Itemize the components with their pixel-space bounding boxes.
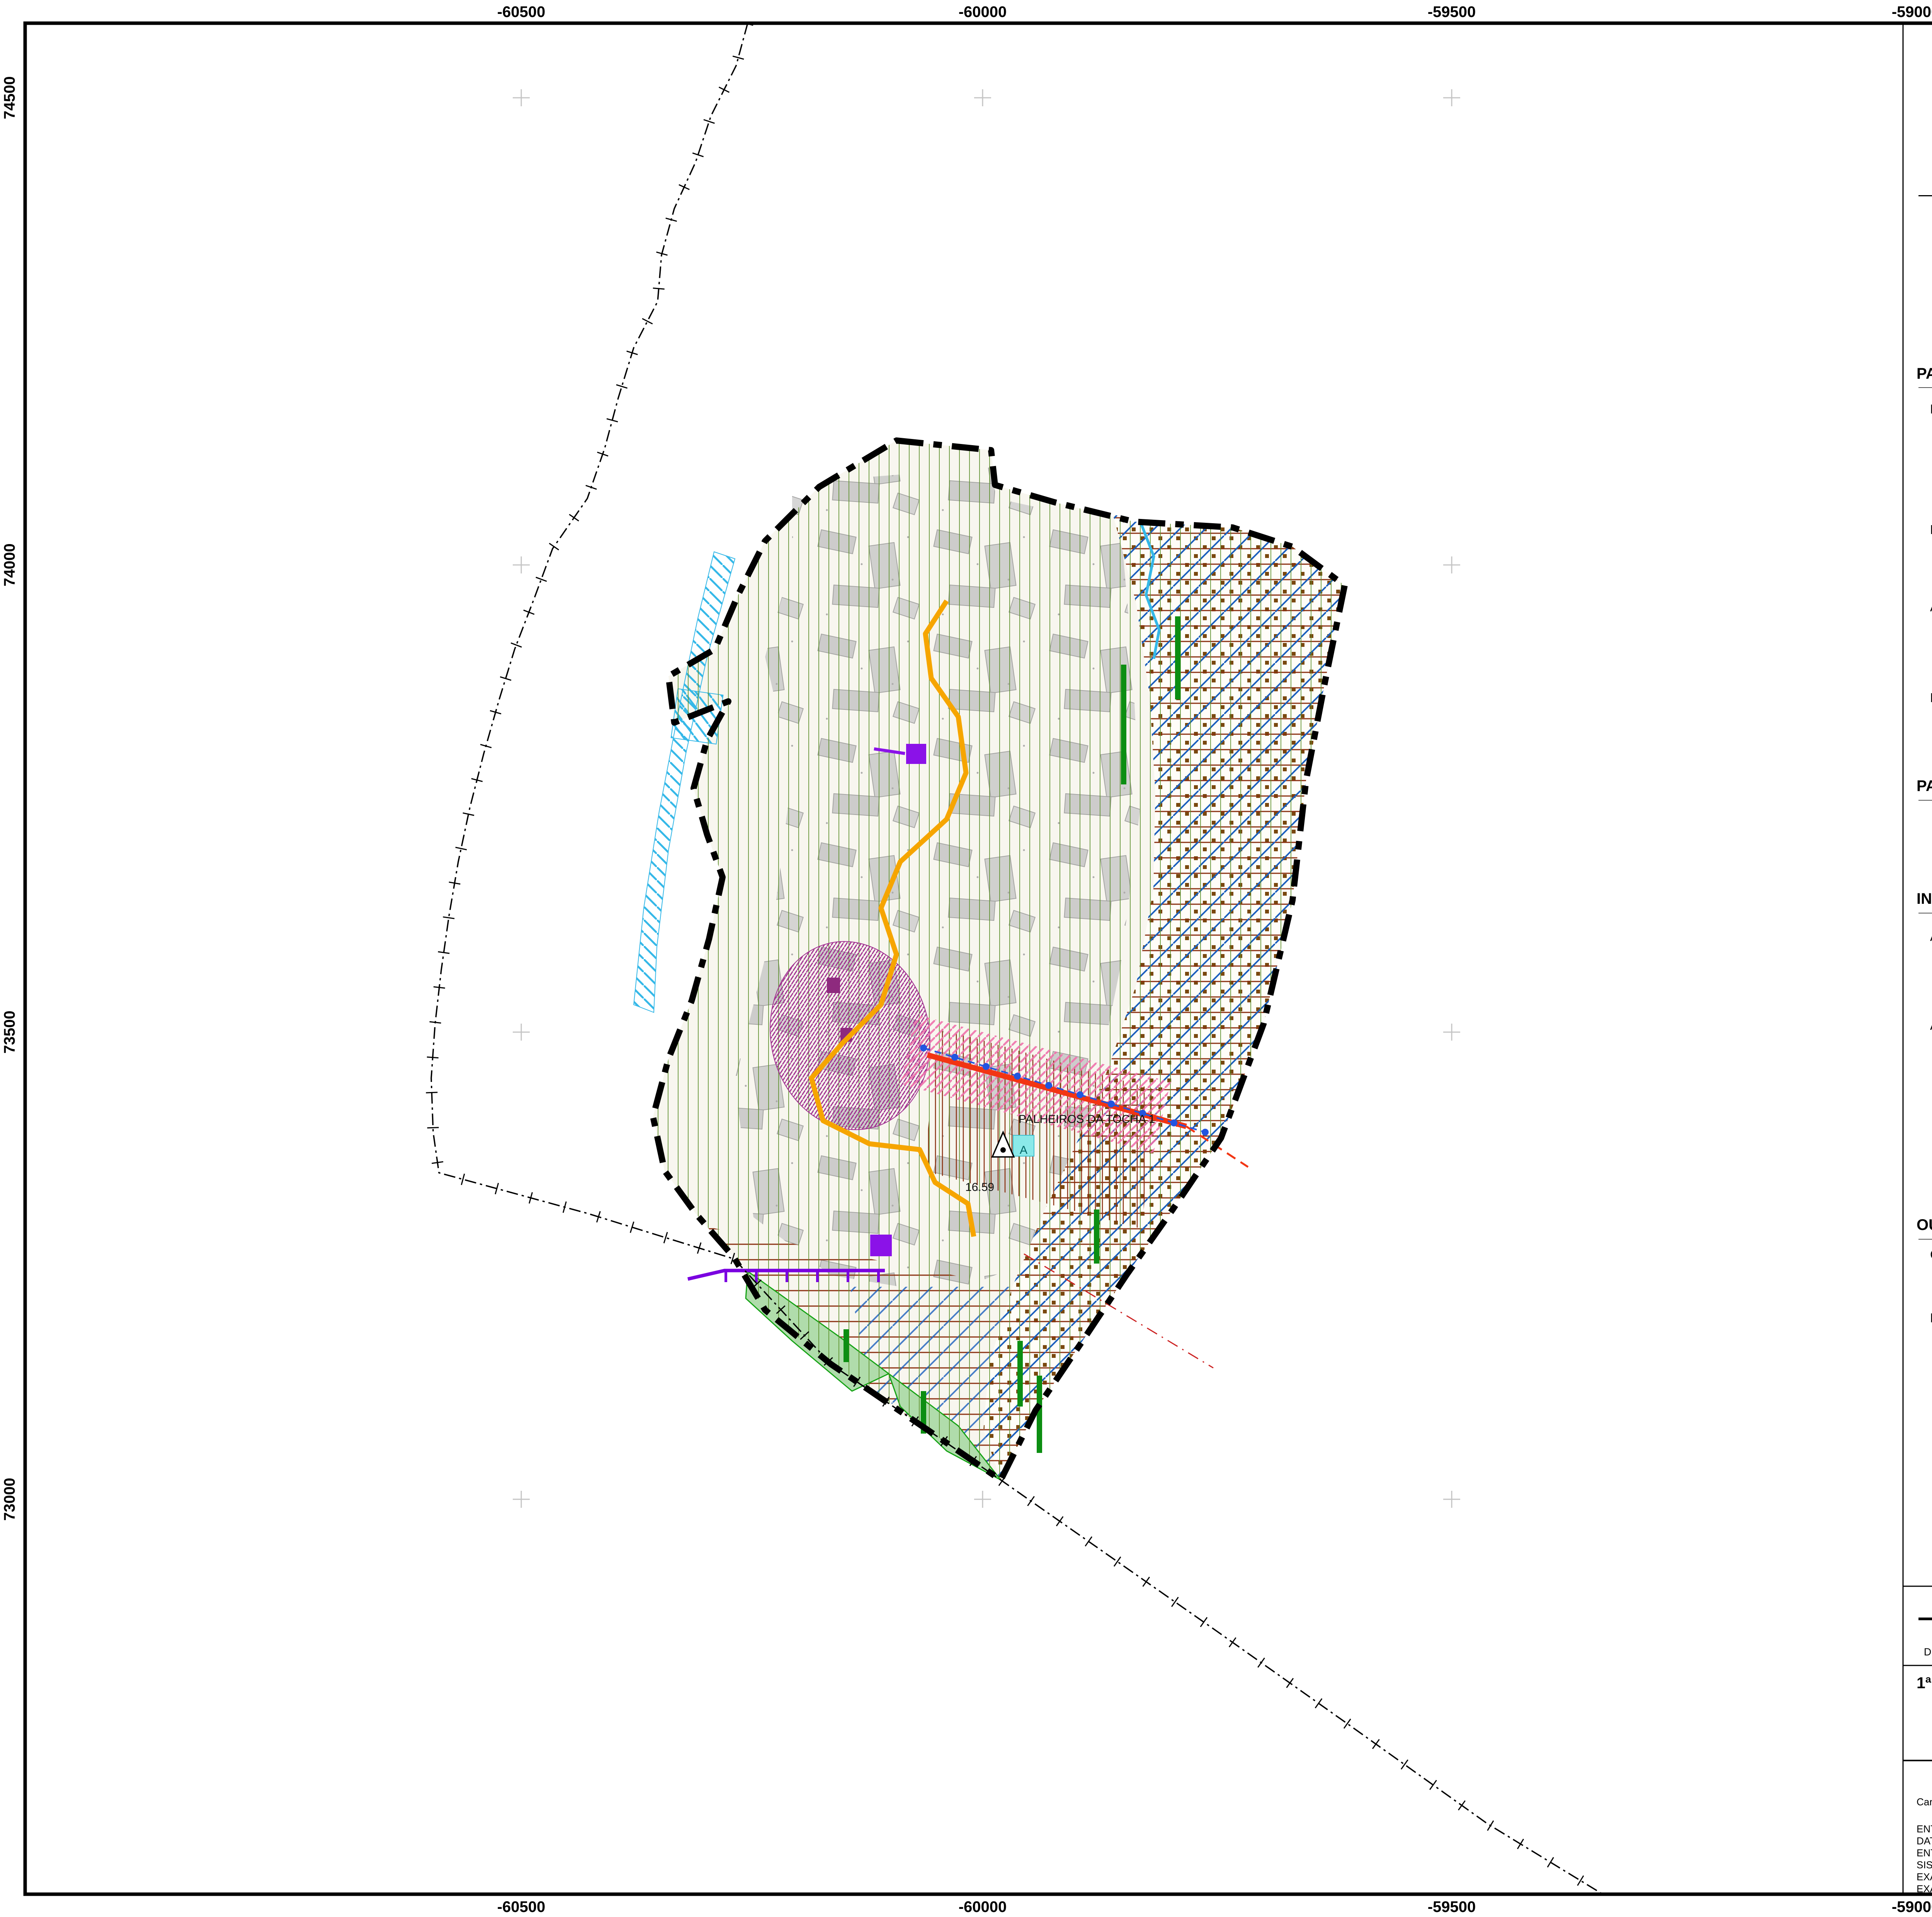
sheet-name: PLANTA DE CONDICIONANTES xyxy=(1917,1737,1932,1757)
natura-2000-zone xyxy=(653,441,1345,1480)
svg-text:-60000: -60000 xyxy=(959,1898,1007,1915)
note-line: ENTIDADE PROPRIETÁRIA: Município de Cant… xyxy=(1917,1823,1932,1835)
note-line: DATA, PROCESSO e RESPONSÁVEL da HOMOLOGA… xyxy=(1917,1835,1932,1847)
place-label: PALHEIROS DA TOCHA 1 xyxy=(1019,1113,1155,1126)
infraestruturas-header: INFRAESTRUTURAS xyxy=(1917,890,1932,908)
svg-text:74000: 74000 xyxy=(1,543,18,586)
storage-letter: A xyxy=(1020,1144,1027,1157)
elevation-label: 16.59 xyxy=(965,1181,994,1194)
note-line: EXATIDÃO TEMÁTICA: >=95% xyxy=(1917,1883,1932,1895)
notes-heading: Cartografia base vetorial homologada: xyxy=(1917,1796,1932,1808)
department-text: DEPARTAMENTO DE URBANISMO xyxy=(1918,1628,1932,1643)
svg-text:-59000: -59000 xyxy=(1892,3,1932,20)
ren-header: RESERVA ECOLÓGICA NACIONAL xyxy=(1930,402,1932,417)
patrimonio-header: PATRIMÓNIO xyxy=(1917,777,1932,795)
infraestruturas-rule xyxy=(1918,913,1932,913)
dpm-header: DOMÍNIO PÚBLICO MARÍTIMO xyxy=(1930,522,1932,537)
svg-text:73500: 73500 xyxy=(1,1010,18,1053)
brand-text: cantanhede.município xyxy=(1918,1591,1932,1616)
plan-version: VERSÃO FINAL xyxy=(1917,1706,1932,1719)
svg-text:74500: 74500 xyxy=(1,76,18,119)
svg-text:-59500: -59500 xyxy=(1428,1898,1476,1915)
natura-header: REDE NATURA 2000 xyxy=(1930,691,1932,705)
faixas-header: FAIXAS DE GESTÃO DE COMBUSTÍVEL xyxy=(1930,1311,1932,1325)
outros-header: OUTROS ELEMENTOS xyxy=(1917,1216,1932,1234)
paisagem-header: PAISAGEM E RECURSOS NATURAIS xyxy=(1917,365,1932,383)
paisagem-rule xyxy=(1918,387,1932,388)
division-text: DIVISÃO DE GESTÃO DO TERRITÓRIO E SUSTEN… xyxy=(1918,1646,1932,1658)
outros-rule xyxy=(1918,1239,1932,1240)
cartografia-header: CARTOGRAFIA xyxy=(1930,1247,1932,1262)
svg-text:-60500: -60500 xyxy=(497,3,546,20)
svg-text:-60500: -60500 xyxy=(497,1898,546,1915)
svg-text:73000: 73000 xyxy=(1,1478,18,1521)
svg-text:-59500: -59500 xyxy=(1428,3,1476,20)
legend-title-rule xyxy=(1918,195,1932,196)
patrimonio-rule xyxy=(1918,800,1932,801)
agua-header: ABASTECIMENTO DE ÁGUA xyxy=(1930,929,1932,944)
map-canvas: A PALHEIROS DA TOCHA 1 16.59 -60500 -600… xyxy=(0,0,1932,1917)
residuais-header: ÁGUAS RESIDUAIS xyxy=(1930,1018,1932,1033)
brand-rule xyxy=(1918,1618,1932,1620)
note-line: ENTIDADE PRODUTORA: GEOLAYER - Geoengenh… xyxy=(1917,1847,1932,1859)
regime-florestal-header: ÁREAS SUBMETIDAS AO REGIME FLORESTAL xyxy=(1930,600,1932,614)
svg-text:-60000: -60000 xyxy=(959,3,1007,20)
note-line: EXATIDÃO POSICIONAL (EMQ): Planimétrica … xyxy=(1917,1871,1932,1883)
note-line: SISTEMA DE REFERÊNCIA: PT-TM06/ETRS89 | … xyxy=(1917,1859,1932,1871)
svg-text:-59000: -59000 xyxy=(1892,1898,1932,1915)
plan-title: 1ª ALTERAÇÃO À 1ª REVISÃO DO PLANO DE UR… xyxy=(1917,1674,1932,1692)
